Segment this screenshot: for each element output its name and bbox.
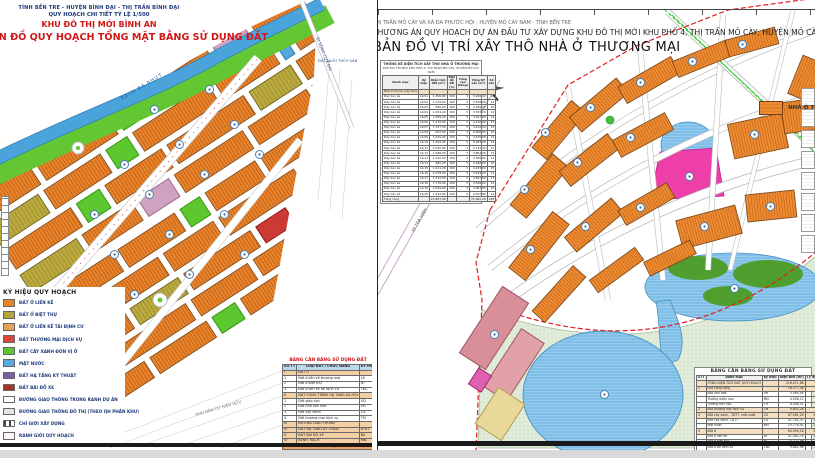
legend-swatch: [3, 347, 15, 355]
legend-item: ĐẤT BÃI ĐỖ XE: [3, 384, 125, 392]
right-landuse-table: BẢNG CÂN BẰNG SỬ DỤNG ĐẤT STT Danh mục K…: [694, 367, 812, 450]
legend-swatch: [3, 372, 15, 380]
right-legend: NHÀ Ở THƯƠNG MẠI: [759, 101, 815, 115]
legend-label: ĐẤT Ở BIỆT THỰ: [19, 312, 57, 317]
cell-tangcao: [456, 197, 469, 202]
left-legend-items: ĐẤT Ở LIỀN KỀ ĐẤT Ở BIỆT THỰ ĐẤT Ở LIỀN …: [3, 299, 125, 440]
left-legend: KÝ HIỆU QUY HOẠCH ĐẤT Ở LIỀN KỀ ĐẤT Ở BI…: [0, 287, 125, 446]
sheet-ruler: [378, 9, 815, 15]
block-label-badge: [255, 150, 264, 159]
note-box: [801, 235, 815, 253]
green-roundabout: [606, 116, 614, 124]
block-label-badge: [90, 210, 99, 219]
note-box: [801, 214, 815, 232]
block-label-badge: [636, 203, 645, 212]
right-title-line3: BẢN ĐỒ VỊ TRÍ XÂY THÔ NHÀ Ở THƯƠNG MẠI: [377, 40, 815, 55]
legend-label: MẶT NƯỚC: [19, 361, 44, 366]
cell-socan: 245: [487, 197, 496, 202]
table-row: Tổng cộng 23.687,40 71.062,20 245: [383, 197, 496, 202]
note-box: [801, 130, 815, 148]
left-frame-bottom: [0, 443, 372, 447]
left-plan-sheet: RẠCH BÀ NHỰT ĐI SÔNG CỬA ĐẠI ĐẤT NUÔI TH…: [0, 0, 372, 450]
note-box: [801, 193, 815, 211]
block-label-badge: [220, 210, 229, 219]
legend-swatch: [3, 299, 15, 307]
col-header: Mật độ XD (%): [447, 76, 456, 90]
block-label-badge: [581, 222, 590, 231]
right-plan-sheet: ĐI TÒA VỊNH: [377, 0, 815, 450]
legend-item: ĐẤT Ở LIỀN KỀ: [3, 299, 125, 307]
legend-swatch: [3, 420, 15, 428]
block-label-badge: [573, 158, 582, 167]
block-label-badge: [685, 172, 694, 181]
left-title-line1: TỈNH BẾN TRE - HUYỆN BÌNH ĐẠI - THỊ TRẤN…: [0, 5, 214, 11]
block-label-badge: [520, 185, 529, 194]
note-box: [801, 172, 815, 190]
legend-label: ĐẤT Ở LIỀN KỀ: [19, 300, 53, 305]
block-label-badge: [541, 128, 550, 137]
block-label-badge: [230, 120, 239, 129]
block-label-badge: [626, 133, 635, 142]
block-label-badge: [240, 250, 249, 259]
legend-item: ĐẤT Ở BIỆT THỰ: [3, 311, 125, 319]
block-label-badge: [200, 170, 209, 179]
block-label-badge: [145, 190, 154, 199]
legend-item: ĐƯỜNG GIAO THÔNG ĐÔ THỊ (THEO QH PHÂN KH…: [3, 408, 125, 416]
legend-item: CHỈ GIỚI XÂY DỰNG: [3, 420, 125, 428]
left-title-line3: KHU ĐÔ THỊ MỚI BÌNH AN: [0, 20, 214, 29]
block-label-badge: [150, 105, 159, 114]
legend-label: ĐƯỜNG GIAO THÔNG TRONG RANH DỰ ÁN: [19, 397, 118, 402]
legend-item: ĐẤT Ở LIỀN KỀ TÁI ĐỊNH CƯ: [3, 323, 125, 331]
block-label-badge: [130, 290, 139, 299]
block-label-badge: [730, 284, 739, 293]
block-label-badge: [185, 270, 194, 279]
block-label-badge: [586, 103, 595, 112]
block-label-badge: [165, 230, 174, 239]
legend-label: ĐẤT THƯƠNG MẠI DỊCH VỤ: [19, 337, 82, 342]
lake-island: [703, 286, 753, 306]
right-frame-bottom: [378, 441, 815, 446]
block-label-badge: [205, 85, 214, 94]
block-label-badge: [120, 160, 129, 169]
aqua-land-label: ĐẤT NUÔI THỦY SẢN: [318, 58, 357, 63]
legend-item: ĐƯỜNG GIAO THÔNG TRONG RANH DỰ ÁN: [3, 396, 125, 404]
right-title-line1: THỊ TRẤN MỎ CÀY VÀ XÃ ĐA PHƯỚC HỘI - HUY…: [377, 20, 815, 26]
block-label-badge: [175, 140, 184, 149]
legend-swatch: [759, 101, 783, 115]
legend-item: RANH GIỚI QUY HOẠCH: [3, 432, 125, 440]
col-header: Số căn: [487, 76, 496, 90]
table-header-row: Danh mục Ký hiệu Diện tích đất (m²) Mật …: [383, 76, 496, 90]
legend-label: ĐẤT HẠ TẦNG KỸ THUẬT: [19, 373, 76, 378]
legend-swatch: [3, 335, 15, 343]
legend-swatch: [3, 384, 15, 392]
col-header: Danh mục: [383, 76, 419, 90]
lake-island: [733, 260, 803, 288]
landuse-table-title: BẢNG CÂN BẰNG SỬ DỤNG ĐẤT: [696, 369, 810, 374]
block-label-badge: [636, 78, 645, 87]
legend-swatch: [3, 323, 15, 331]
note-box: [801, 151, 815, 169]
legend-label: CHỈ GIỚI XÂY DỰNG: [19, 421, 65, 426]
legend-swatch: [3, 396, 15, 404]
legend-label: RANH GIỚI QUY HOẠCH: [19, 433, 74, 438]
roundabout-green: [76, 146, 80, 150]
block-label-badge: [750, 130, 759, 139]
legend-label: ĐẤT CÂY XANH ĐƠN VỊ Ở: [19, 349, 77, 354]
right-statistics-table: THỐNG KÊ DIỆN TÍCH XÂY THÔ NHÀ Ở THƯƠNG …: [380, 60, 482, 204]
planning-maps-screenshot: RẠCH BÀ NHỰT ĐI SÔNG CỬA ĐẠI ĐẤT NUÔI TH…: [0, 0, 815, 458]
legend-swatch: [3, 432, 15, 440]
legend-item: MẶT NƯỚC: [3, 359, 125, 367]
col-header: Tầng cao (tầng): [456, 76, 469, 90]
legend-swatch: [3, 408, 15, 416]
left-title-line2: QUY HOẠCH CHI TIẾT TỶ LỆ 1/500: [0, 12, 214, 18]
col-header: Diện tích đất (m²): [429, 76, 447, 90]
left-legend-title: KÝ HIỆU QUY HOẠCH: [3, 289, 125, 296]
left-title-line4: BẢN ĐỒ QUY HOẠCH TỔNG MẶT BẰNG SỬ DỤNG Đ…: [0, 32, 214, 43]
legend-item: ĐẤT HẠ TẦNG KỸ THUẬT: [3, 372, 125, 380]
block-label-badge: [766, 202, 775, 211]
legend-swatch: [3, 311, 15, 319]
block-label-badge: [526, 245, 535, 254]
block-label-badge: [700, 222, 709, 231]
cell-matdo: [447, 197, 456, 202]
left-landuse-table: BẢNG CÂN BẰNG SỬ DỤNG ĐẤT SỐ TT LOẠI ĐẤT…: [282, 358, 372, 450]
col-header: Tổng DT sàn (m²): [469, 76, 487, 90]
block-label-badge: [110, 250, 119, 259]
col-header: Ký hiệu: [418, 76, 429, 90]
legend-item: ĐẤT THƯƠNG MẠI DỊCH VỤ: [3, 335, 125, 343]
window-bottom-strip: [0, 450, 815, 458]
legend-label: ĐẤT BÃI ĐỖ XE: [19, 385, 54, 390]
left-sheet-header: TỈNH BẾN TRE - HUYỆN BÌNH ĐẠI - THỊ TRẤN…: [0, 5, 214, 43]
block-label-badge: [688, 57, 697, 66]
roundabout-green: [158, 298, 163, 303]
legend-label: ĐƯỜNG GIAO THÔNG ĐÔ THỊ (THEO QH PHÂN KH…: [19, 409, 139, 414]
scale-bar: [1, 196, 9, 276]
cell-san: 71.062,20: [469, 197, 487, 202]
right-title-line2: PHƯƠNG ÁN QUY HOẠCH DỰ ÁN ĐẦU TƯ XÂY DỰN…: [377, 28, 815, 37]
legend-item: ĐẤT CÂY XANH ĐƠN VỊ Ở: [3, 347, 125, 355]
right-sheet-header: THỊ TRẤN MỎ CÀY VÀ XÃ ĐA PHƯỚC HỘI - HUY…: [377, 20, 815, 55]
legend-swatch: [3, 359, 15, 367]
block-label-badge: [490, 330, 499, 339]
left-table-title: BẢNG CÂN BẰNG SỬ DỤNG ĐẤT: [282, 358, 372, 363]
block-label-badge: [600, 390, 609, 399]
cell-kyhieu: [418, 197, 429, 202]
stat-table-caption2: KHU ĐÔ THỊ MỚI KHU PHỐ 4, THỊ TRẤN MỎ CÀ…: [382, 66, 480, 74]
cell-name: Tổng cộng: [383, 197, 419, 202]
legend-label: NHÀ Ở THƯƠNG MẠI: [788, 105, 815, 111]
cell-dientich: 23.687,40: [429, 197, 447, 202]
legend-label: ĐẤT Ở LIỀN KỀ TÁI ĐỊNH CƯ: [19, 324, 84, 329]
